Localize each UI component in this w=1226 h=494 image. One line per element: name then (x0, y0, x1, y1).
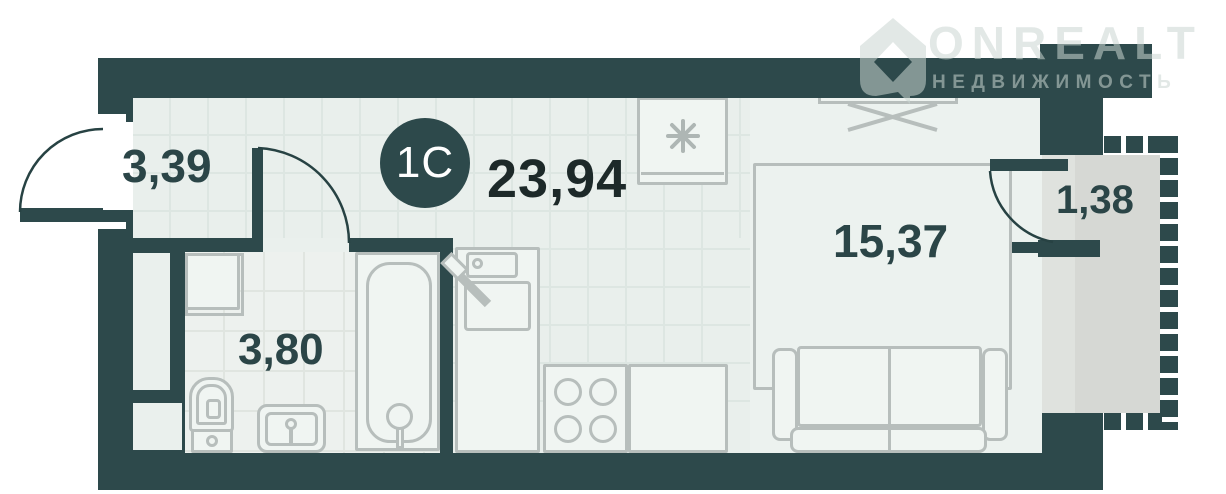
balcony-area-label: 1,38 (1056, 180, 1134, 220)
unit-type-badge: 1С (380, 118, 470, 208)
hallway-area-label: 3,39 (122, 143, 212, 189)
entrance-door-arc (20, 129, 103, 212)
balcony-door-arc (990, 171, 1053, 242)
tv-legs-icon (848, 104, 937, 130)
total-area-label: 23,94 (487, 152, 627, 206)
bathroom-area-label: 3,80 (238, 328, 324, 372)
kitchen-faucet-icon (442, 254, 488, 304)
living-room-area-label: 15,37 (833, 218, 948, 264)
bathroom-door-arc (258, 148, 349, 243)
freezer-icon (668, 121, 698, 151)
logo-house-icon (852, 12, 934, 104)
floor-plan: 1С 23,94 3,39 3,80 15,37 1,38 ONREALT НЕ… (0, 0, 1226, 494)
logo-tagline-text: НЕДВИЖИМОСТЬ (932, 73, 1177, 92)
logo-brand-text: ONREALT (928, 20, 1203, 66)
